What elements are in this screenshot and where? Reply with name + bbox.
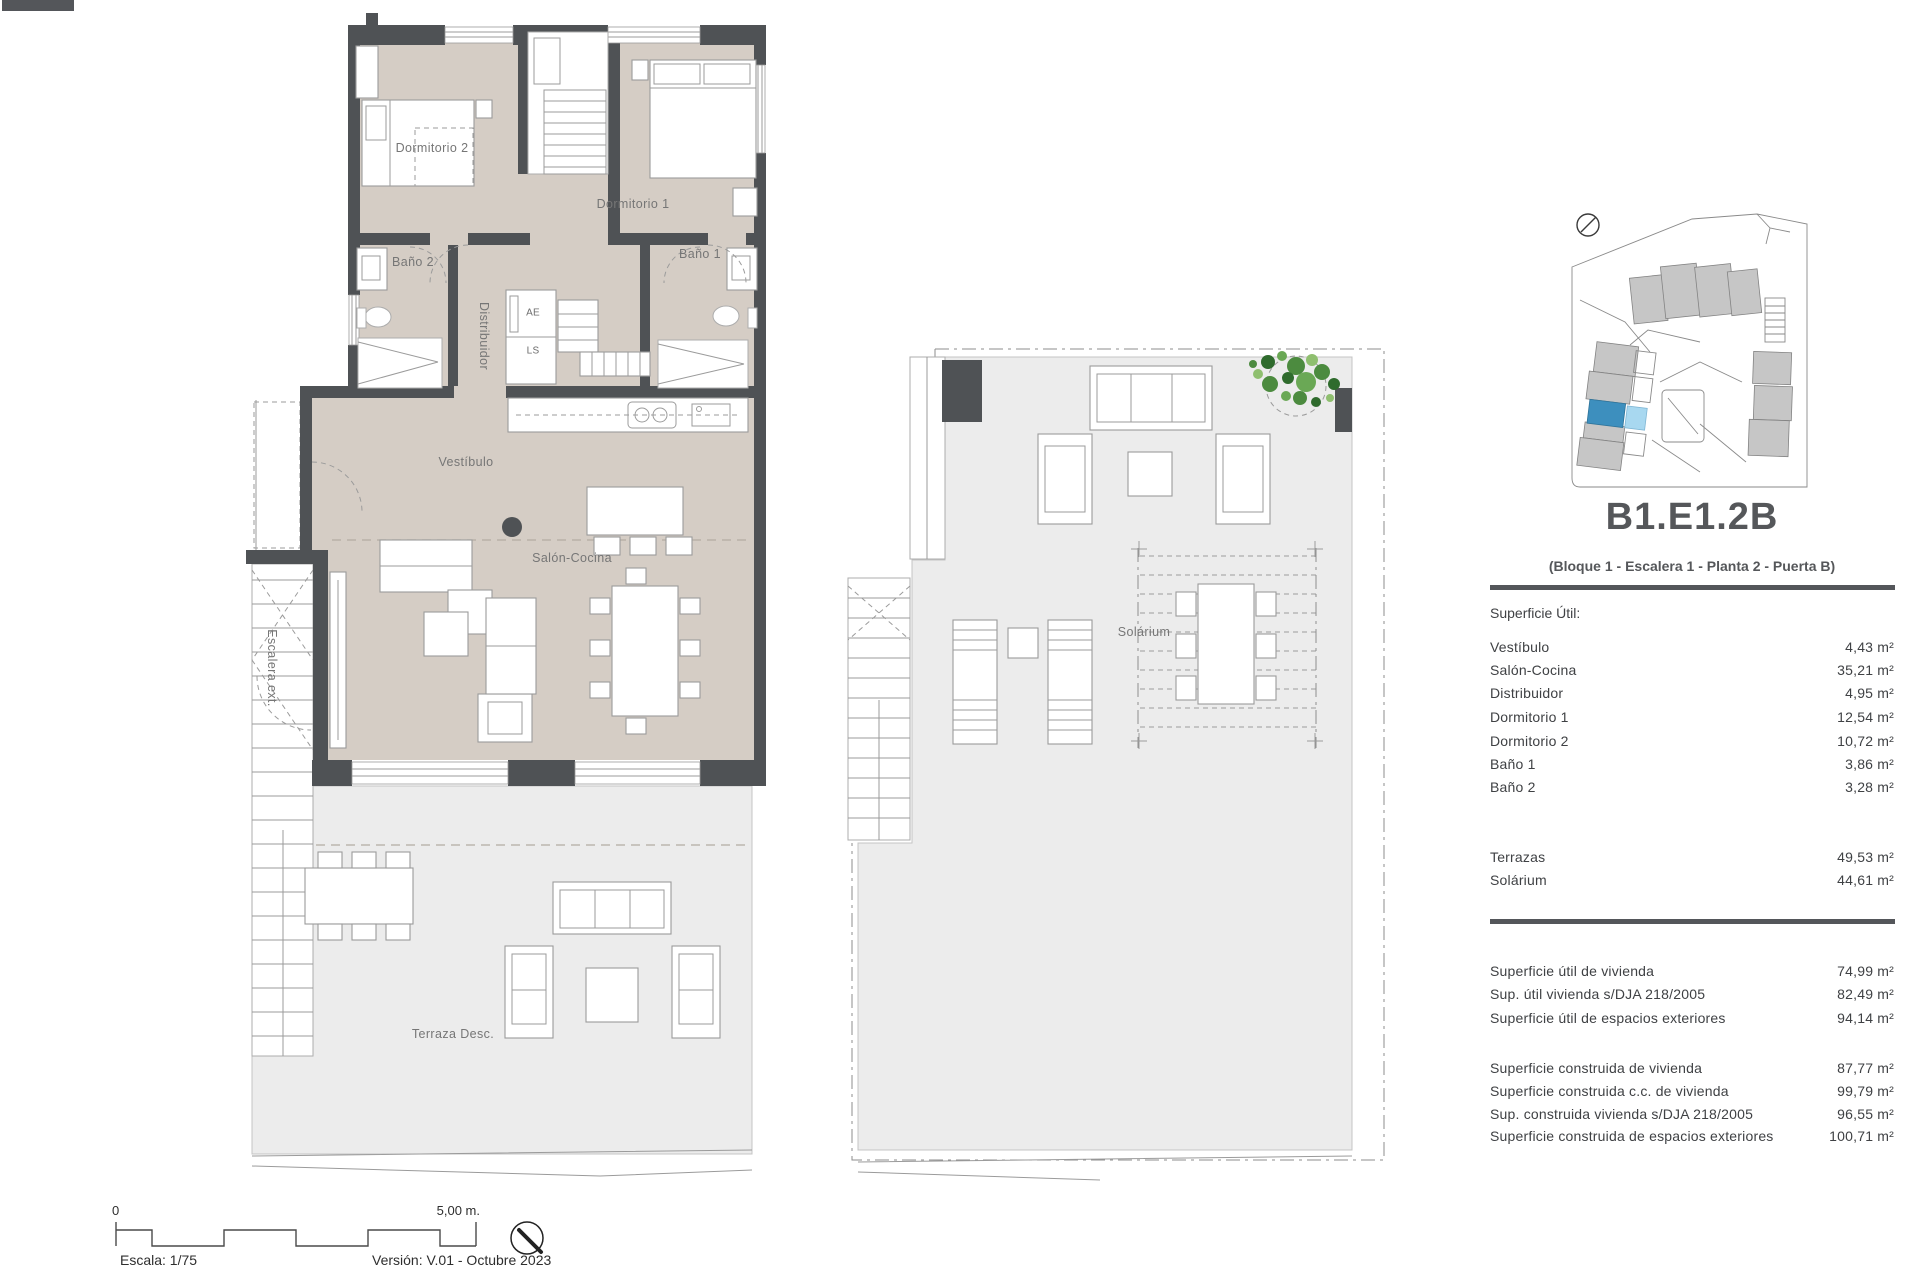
- room-label-bano2: Baño 2: [392, 255, 434, 269]
- room-label-escalera: Escalera ext.: [265, 629, 279, 706]
- divider-rule-top: [1490, 585, 1895, 590]
- area-row-label: Solárium: [1490, 872, 1547, 888]
- room-label-dormitorio2: Dormitorio 2: [396, 141, 469, 155]
- scale-start-label: 0: [112, 1203, 119, 1218]
- area-row-label: Vestíbulo: [1490, 639, 1549, 655]
- room-label-solarium: Solárium: [1118, 625, 1171, 639]
- room-label-salon: Salón-Cocina: [532, 551, 612, 565]
- scale-bar: [116, 1222, 476, 1246]
- closet-label-ls: LS: [527, 346, 540, 357]
- solarium-stair: [848, 578, 910, 840]
- summary-row-label: Superficie construida de espacios exteri…: [1490, 1128, 1774, 1144]
- area-row-value: 49,53 m²: [1837, 849, 1894, 865]
- area-row-value: 4,95 m²: [1845, 685, 1894, 701]
- area-row-value: 44,61 m²: [1837, 872, 1894, 888]
- area-row-value: 3,86 m²: [1845, 756, 1894, 772]
- main-floor-plan: [246, 13, 766, 1176]
- area-row: Dormitorio 1 12,54 m²: [1490, 709, 1894, 725]
- kitchen-counter: [508, 398, 748, 432]
- area-row: Distribuidor 4,95 m²: [1490, 685, 1894, 701]
- section-heading-superficie-util: Superficie Útil:: [1490, 605, 1580, 621]
- summary-row-value: 100,71 m²: [1829, 1128, 1894, 1144]
- summary-row: Sup. construida vivienda s/DJA 218/2005 …: [1490, 1106, 1894, 1122]
- version-text: Versión: V.01 - Octubre 2023: [372, 1252, 551, 1268]
- unit-subtitle: (Bloque 1 - Escalera 1 - Planta 2 - Puer…: [1470, 558, 1914, 574]
- summary-row-value: 74,99 m²: [1837, 963, 1894, 979]
- area-row-value: 12,54 m²: [1837, 709, 1894, 725]
- buildings-right: [1748, 351, 1794, 456]
- room-label-distribuidor: Distribuidor: [477, 302, 491, 370]
- area-row-value: 35,21 m²: [1837, 662, 1894, 678]
- site-map: [1572, 214, 1807, 487]
- area-row-label: Salón-Cocina: [1490, 662, 1576, 678]
- summary-row-label: Superficie construida c.c. de vivienda: [1490, 1083, 1729, 1099]
- area-row-value: 4,43 m²: [1845, 639, 1894, 655]
- divider-rule-bottom: [1490, 919, 1895, 924]
- highlighted-unit-secondary: [1625, 406, 1648, 430]
- summary-row: Superficie construida de vivienda 87,77 …: [1490, 1060, 1894, 1076]
- summary-row-label: Superficie útil de vivienda: [1490, 963, 1654, 979]
- summary-row-value: 94,14 m²: [1837, 1010, 1894, 1026]
- summary-row: Superficie útil de vivienda 74,99 m²: [1490, 963, 1894, 979]
- scale-text: Escala: 1/75: [120, 1252, 197, 1268]
- unit-title: B1.E1.2B: [1490, 496, 1894, 539]
- plan-sheet: Dormitorio 2 Dormitorio 1 Baño 2 Baño 1 …: [0, 0, 1920, 1280]
- highlighted-unit: [1587, 399, 1626, 427]
- area-row: Vestíbulo 4,43 m²: [1490, 639, 1894, 655]
- area-row-label: Baño 2: [1490, 779, 1536, 795]
- solarium-floor-plan: [848, 349, 1384, 1180]
- column: [502, 517, 522, 537]
- summary-row: Superficie construida de espacios exteri…: [1490, 1128, 1894, 1144]
- room-label-vestibulo: Vestíbulo: [438, 455, 493, 469]
- summary-row-label: Superficie construida de vivienda: [1490, 1060, 1702, 1076]
- summary-row-value: 96,55 m²: [1837, 1106, 1894, 1122]
- summary-row-value: 99,79 m²: [1837, 1083, 1894, 1099]
- area-row-label: Baño 1: [1490, 756, 1536, 772]
- closet-label-ae: AE: [526, 308, 540, 319]
- area-row: Terrazas 49,53 m²: [1490, 849, 1894, 865]
- buildings-top: [1629, 257, 1762, 326]
- summary-row: Superficie construida c.c. de vivienda 9…: [1490, 1083, 1894, 1099]
- area-row-value: 10,72 m²: [1837, 733, 1894, 749]
- summary-row-label: Sup. útil vivienda s/DJA 218/2005: [1490, 986, 1705, 1002]
- area-row-label: Dormitorio 2: [1490, 733, 1569, 749]
- area-row-label: Distribuidor: [1490, 685, 1563, 701]
- interior-stair: [528, 32, 608, 174]
- summary-row-value: 82,49 m²: [1837, 986, 1894, 1002]
- buildings-left: [1577, 341, 1657, 473]
- summary-row: Sup. útil vivienda s/DJA 218/2005 82,49 …: [1490, 986, 1894, 1002]
- scale-end-label: 5,00 m.: [424, 1203, 480, 1218]
- area-row: Dormitorio 2 10,72 m²: [1490, 733, 1894, 749]
- area-row-label: Dormitorio 1: [1490, 709, 1569, 725]
- area-row: Salón-Cocina 35,21 m²: [1490, 662, 1894, 678]
- room-label-terraza: Terraza Desc.: [412, 1027, 494, 1041]
- area-row-label: Terrazas: [1490, 849, 1545, 865]
- room-label-dormitorio1: Dormitorio 1: [597, 197, 670, 211]
- area-row-value: 3,28 m²: [1845, 779, 1894, 795]
- summary-row-label: Superficie útil de espacios exteriores: [1490, 1010, 1726, 1026]
- north-arrow-icon: [511, 1222, 543, 1254]
- map-compass-icon: [1577, 214, 1599, 236]
- summary-row-value: 87,77 m²: [1837, 1060, 1894, 1076]
- area-row: Baño 2 3,28 m²: [1490, 779, 1894, 795]
- area-row: Baño 1 3,86 m²: [1490, 756, 1894, 772]
- summary-row: Superficie útil de espacios exteriores 9…: [1490, 1010, 1894, 1026]
- summary-row-label: Sup. construida vivienda s/DJA 218/2005: [1490, 1106, 1753, 1122]
- room-label-bano1: Baño 1: [679, 247, 721, 261]
- area-row: Solárium 44,61 m²: [1490, 872, 1894, 888]
